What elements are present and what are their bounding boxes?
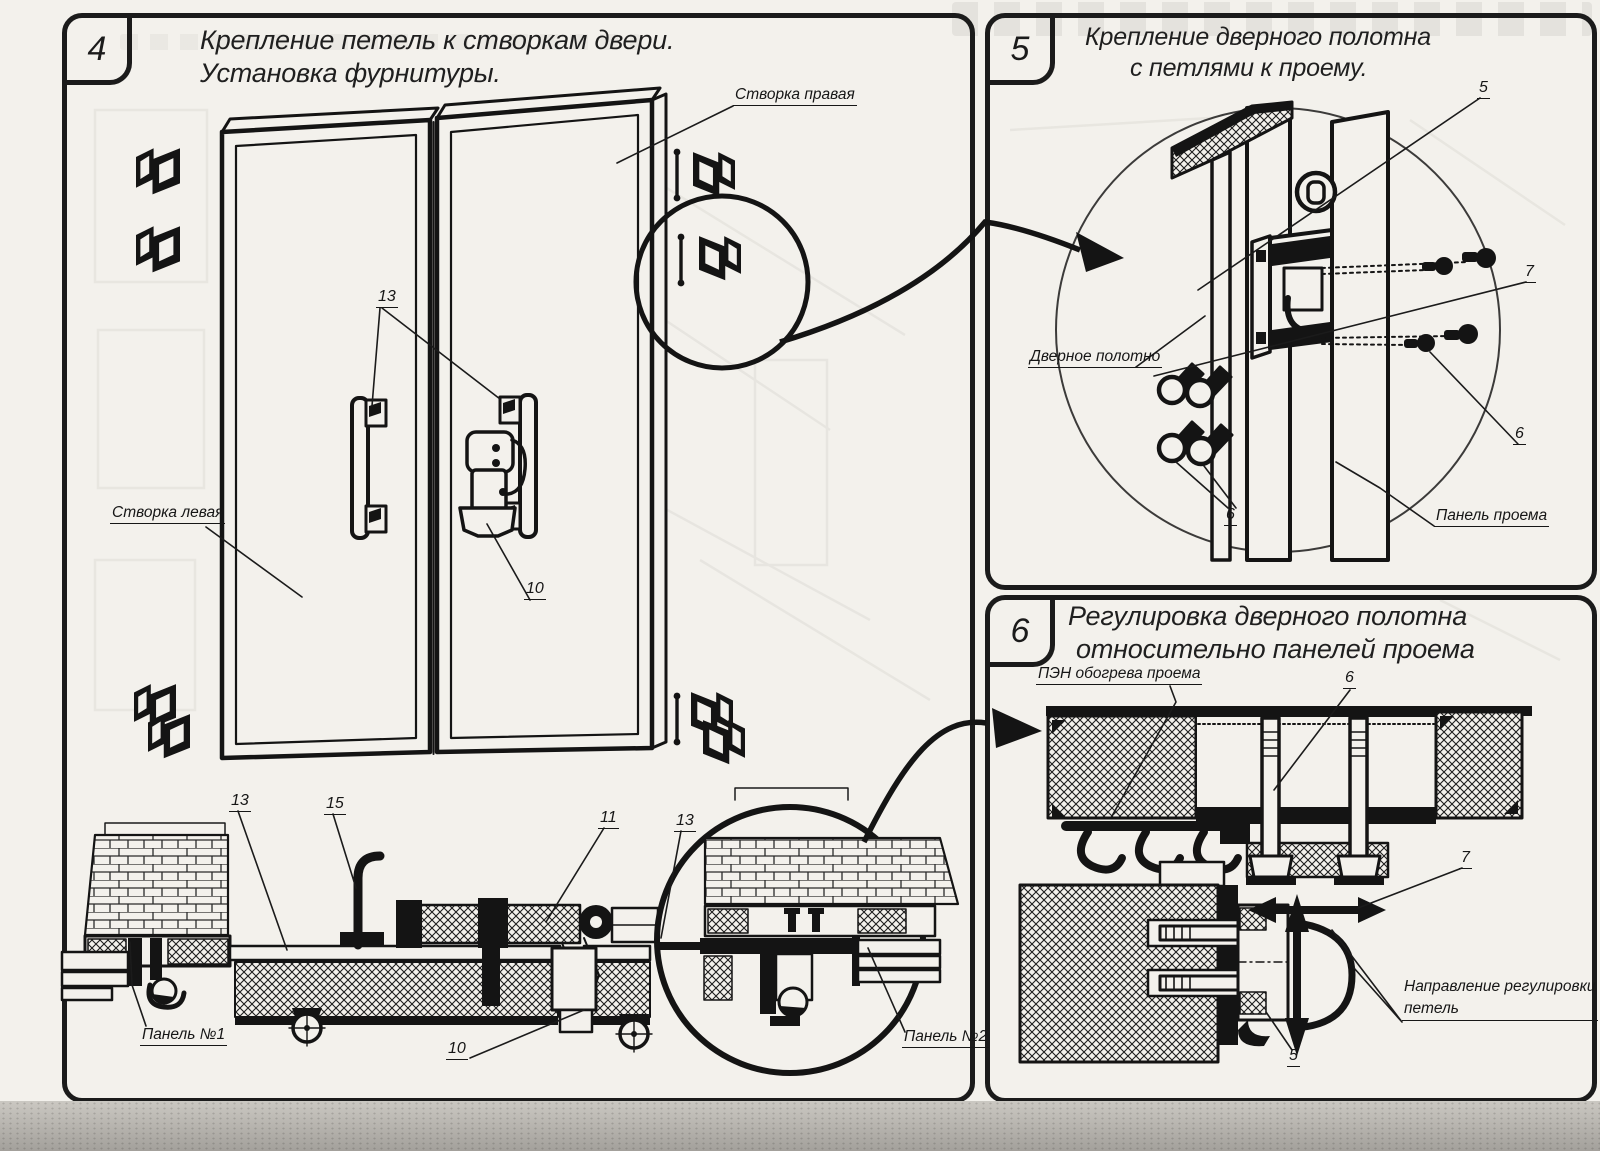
callout-11: 11: [598, 809, 619, 829]
label-left-leaf: Створка левая: [110, 504, 225, 524]
label-adjust-direction: Направление регулировки петель: [1402, 976, 1598, 1021]
panel4-title-line2: Установка фурнитуры.: [200, 57, 674, 90]
label-heater: ПЭН обогрева проема: [1036, 665, 1202, 685]
callout-7-p5: 7: [1523, 263, 1536, 283]
callout-13-handles: 13: [376, 288, 398, 308]
label-panel-1: Панель №1: [140, 1026, 227, 1046]
label-panel-2: Панель №2: [902, 1028, 989, 1048]
panel4-title-line1: Крепление петель к створкам двери.: [200, 24, 674, 57]
scan-edge-strip: [0, 1101, 1600, 1151]
panel5-title-line1: Крепление дверного полотна: [1085, 22, 1431, 53]
panel5-number-badge: 5: [990, 18, 1055, 85]
panel4-number: 4: [88, 30, 107, 69]
label-opening-panel: Панель проема: [1434, 507, 1549, 527]
panel5-title-line2: с петлями к проему.: [1130, 53, 1431, 84]
callout-13-right: 13: [674, 812, 696, 832]
drawing-sheet: 4 5 6 Крепление петель к створкам двери.…: [0, 0, 1600, 1151]
callout-13-left: 13: [229, 792, 251, 812]
panel5-number: 5: [1011, 30, 1030, 69]
callout-5-p5: 5: [1477, 79, 1490, 99]
callout-7-p6: 7: [1459, 849, 1472, 869]
label-right-leaf: Створка правая: [733, 86, 857, 106]
panel6-title-line1: Регулировка дверного полотна: [1068, 600, 1475, 633]
callout-5-p6: 5: [1287, 1047, 1300, 1067]
panel5-frame: [985, 13, 1597, 590]
callout-10-latch: 10: [524, 580, 546, 600]
callout-6-right-p5: 6: [1513, 425, 1526, 445]
panel5-title: Крепление дверного полотна с петлями к п…: [1085, 22, 1431, 83]
panel4-number-badge: 4: [67, 18, 132, 85]
panel4-frame: [62, 13, 975, 1103]
label-door-leaf: Дверное полотно: [1028, 348, 1162, 368]
callout-15: 15: [324, 795, 346, 815]
callout-6-p6: 6: [1343, 669, 1356, 689]
label-adjust-direction-line1: Направление регулировки: [1404, 976, 1596, 998]
panel6-title-line2: относительно панелей проема: [1076, 633, 1475, 666]
label-adjust-direction-line2: петель: [1404, 998, 1596, 1020]
callout-6-left-p5: 6: [1224, 506, 1237, 526]
panel6-number-badge: 6: [990, 600, 1055, 667]
panel6-title: Регулировка дверного полотна относительн…: [1068, 600, 1475, 666]
callout-10-bottom: 10: [446, 1040, 468, 1060]
panel4-title: Крепление петель к створкам двери. Устан…: [200, 24, 674, 90]
panel6-number: 6: [1011, 612, 1030, 651]
